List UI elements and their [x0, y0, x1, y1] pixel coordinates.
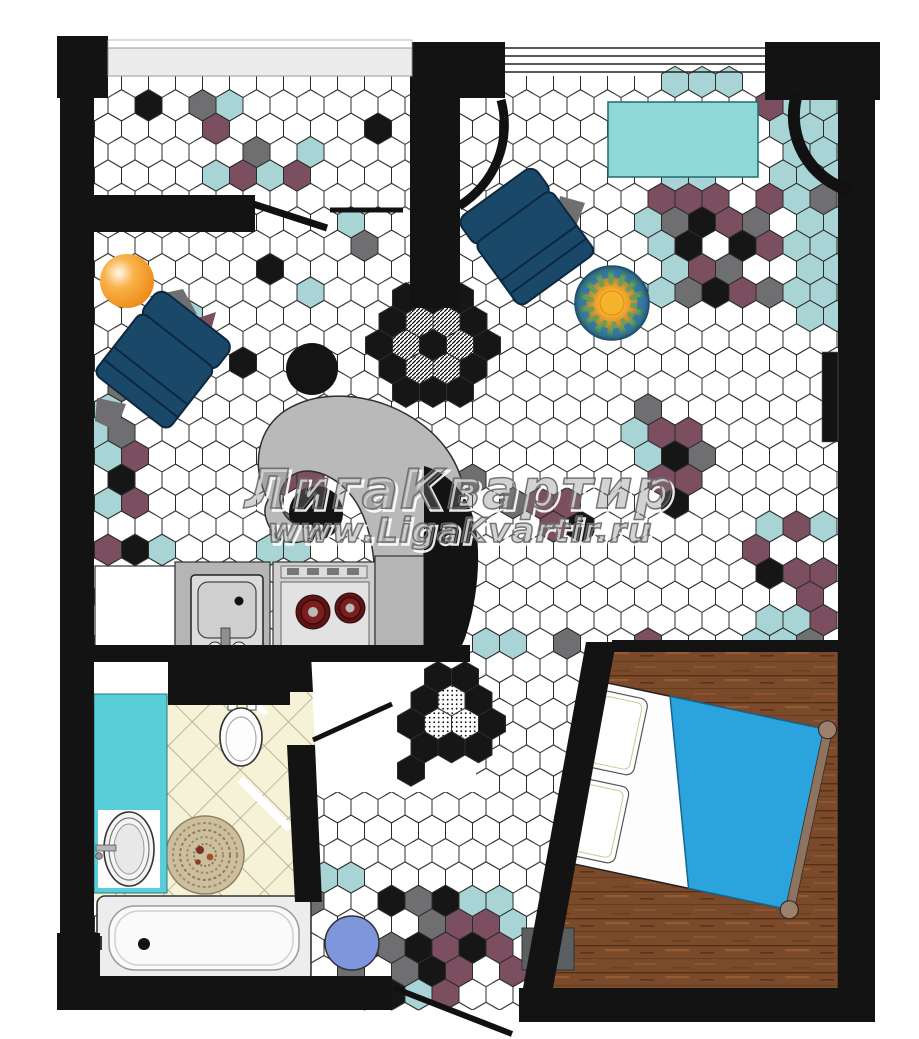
wall-bath-top — [168, 645, 290, 705]
sun-mosaic-decor — [575, 266, 649, 340]
watermark: ЛигаКвартир ЛигаКвартир www.LigaKvartir.… — [243, 458, 678, 554]
balcony-band — [108, 48, 412, 76]
wall-hall — [94, 195, 255, 232]
wall-top-mid — [410, 42, 505, 98]
counter-return — [375, 556, 424, 655]
kitchen — [95, 556, 424, 656]
kitchen-sink — [191, 575, 263, 656]
watermark-line2: www.LigaKvartir.ru — [267, 511, 653, 551]
balcony-sill — [108, 40, 412, 48]
wall-bottom-left — [94, 976, 392, 1010]
drain — [138, 938, 150, 950]
wall-column — [410, 98, 460, 308]
bathroom — [94, 662, 322, 982]
wall-bedroom-top — [612, 640, 838, 652]
wall-left — [60, 90, 94, 1010]
floor-plan: ЛигаКвартир ЛигаКвартир www.LigaKvartir.… — [0, 0, 919, 1039]
teal-table — [608, 102, 758, 177]
floor-plan-page: ЛигаКвартир ЛигаКвартир www.LigaKvartir.… — [0, 0, 919, 1039]
kitchen-cabinet — [95, 566, 175, 652]
wall-right — [838, 98, 875, 1015]
radiator — [822, 352, 838, 442]
bathtub — [96, 896, 311, 982]
stove — [281, 566, 369, 646]
wall-bottom-right — [519, 988, 875, 1022]
wall-bath-right-upper — [283, 655, 313, 692]
wall-corner-tl — [57, 36, 108, 98]
bath-corner — [94, 662, 168, 694]
round-table — [286, 343, 338, 395]
mosaic-rug — [166, 816, 244, 894]
blue-stool — [325, 916, 379, 970]
wall-corner-bl — [57, 933, 100, 1010]
orange-pouf — [100, 254, 154, 308]
wall-corner-tr — [765, 42, 880, 100]
